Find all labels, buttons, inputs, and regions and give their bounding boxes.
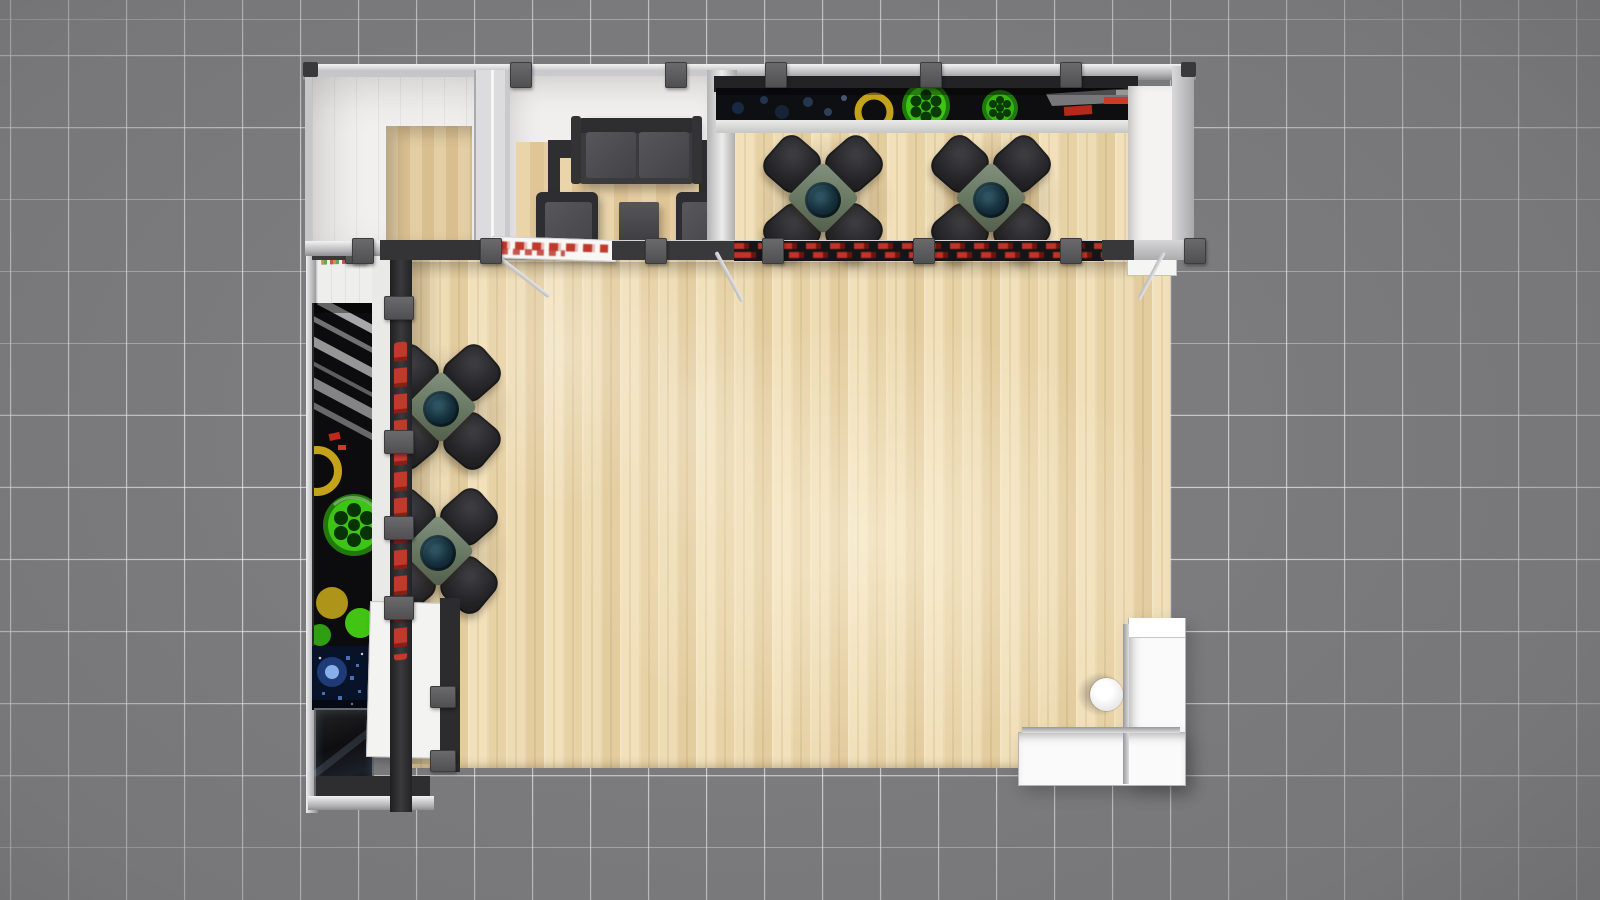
back-wing-end-wall — [1128, 86, 1176, 248]
rail-clamp — [1060, 62, 1082, 88]
white-header-banner — [492, 236, 617, 262]
bistro-table-glass-center — [973, 182, 1009, 218]
armchair-cushion — [545, 202, 592, 242]
counter-inner-frame — [1123, 624, 1129, 784]
sofa-armrest — [692, 116, 702, 184]
digital-blue-graphic — [312, 646, 370, 710]
rail-clamp — [384, 430, 414, 454]
rail-clamp — [913, 238, 935, 264]
rail-clamp — [1184, 238, 1206, 264]
sofa-armrest — [571, 116, 581, 184]
rail-clamp — [480, 238, 502, 264]
rail-clamp — [765, 62, 787, 88]
rail-clamp — [510, 62, 532, 88]
rail-dark-segment — [380, 240, 496, 260]
storage-room-floor — [386, 126, 472, 240]
bistro-table-glass-center — [420, 535, 456, 571]
rail-clamp — [352, 238, 374, 264]
rail-clamp — [920, 62, 942, 88]
back-wall-graphic — [716, 88, 1136, 122]
rail-clamp — [430, 750, 456, 772]
sofa-cushion — [639, 132, 689, 178]
cabinet-frame-rail — [440, 598, 460, 772]
rail-clamp — [1060, 238, 1082, 264]
rail-dark-segment — [1102, 240, 1134, 260]
rail-clamp — [430, 686, 456, 708]
sofa-cushion — [586, 132, 636, 178]
reception-counter-endcap — [1129, 618, 1185, 638]
aluminum-frame-rail — [308, 796, 434, 810]
rail-clamp — [762, 238, 784, 264]
bistro-table-glass-center — [805, 182, 841, 218]
rail-clamp — [665, 62, 687, 88]
rail-clamp — [645, 238, 667, 264]
digital-pattern-artwork — [312, 646, 370, 710]
bistro-table-glass-center — [423, 391, 459, 427]
3d-viewport[interactable] — [0, 0, 1600, 900]
rail-clamp — [384, 596, 414, 620]
red-banner-lettering — [501, 248, 565, 256]
rail-clamp — [384, 296, 414, 320]
round-stool — [1090, 678, 1123, 711]
aluminum-frame-rail — [1172, 66, 1194, 258]
corner-bracket — [1181, 62, 1196, 77]
corner-bracket — [303, 62, 318, 77]
counter-inner-frame — [1022, 727, 1180, 733]
left-wall-graphic — [312, 303, 374, 648]
film-reel-artwork — [716, 88, 1136, 122]
reception-counter-horizontal-arm — [1018, 732, 1186, 786]
rail-clamp — [384, 516, 414, 540]
sofa-backrest — [578, 118, 695, 133]
left-wing-bottom-trim — [316, 776, 430, 798]
film-reel-artwork — [314, 303, 374, 648]
